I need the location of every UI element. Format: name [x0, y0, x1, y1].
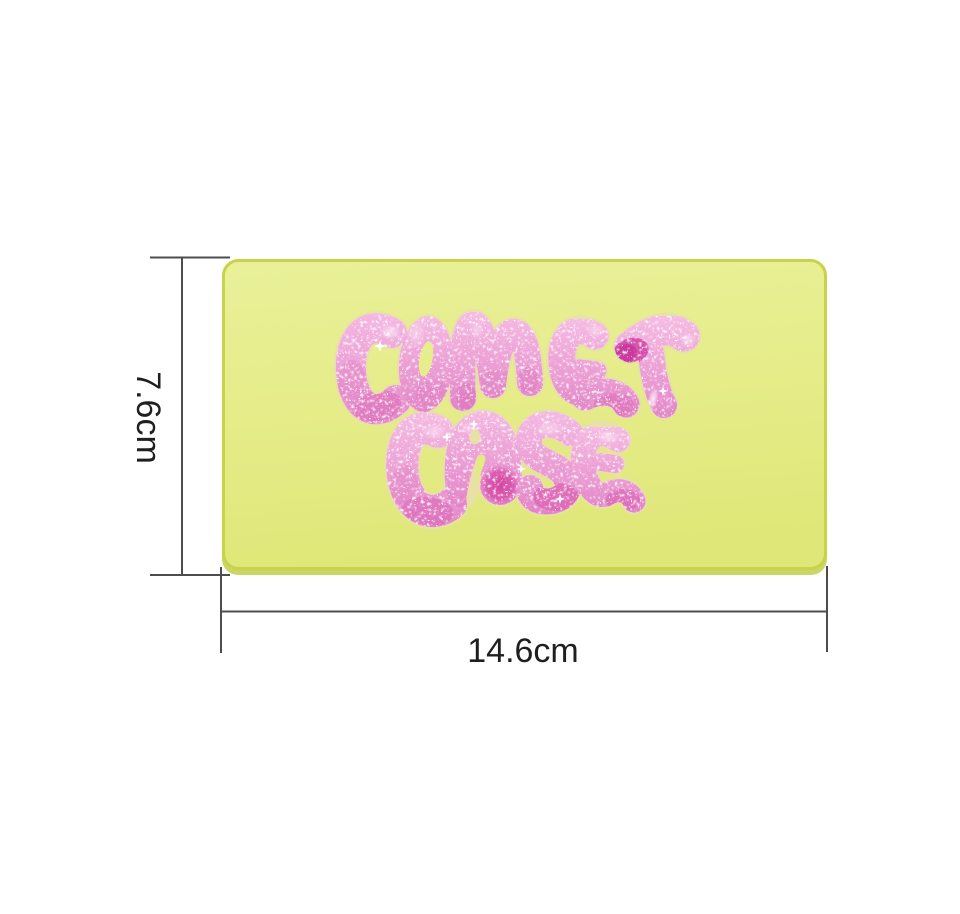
svg-text:14.6cm: 14.6cm	[467, 632, 579, 670]
svg-text:7.6cm: 7.6cm	[129, 371, 167, 464]
